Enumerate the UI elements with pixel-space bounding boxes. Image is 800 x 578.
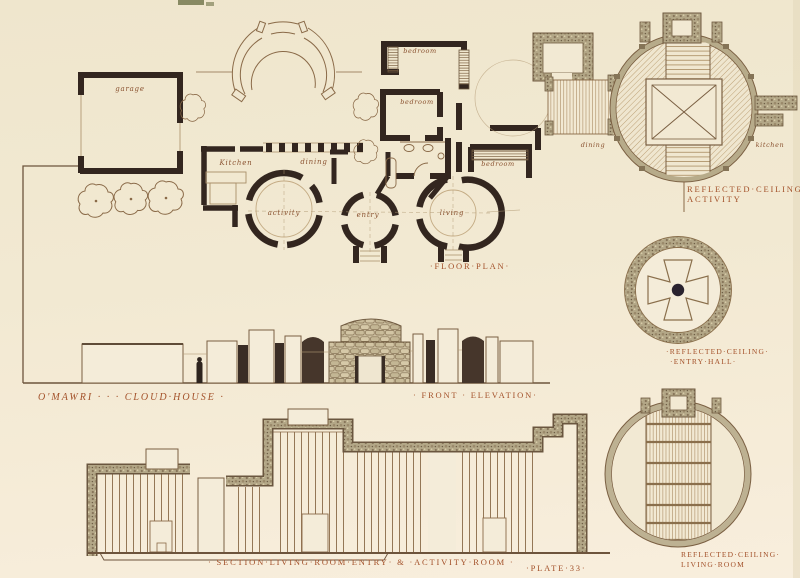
planter [180, 94, 205, 121]
caption-rc-entry-2: ·ENTRY·HALL· [670, 357, 736, 366]
dark-cylinder-right [462, 337, 484, 384]
rc-walkway [545, 75, 618, 135]
rc-kitchen-room [533, 33, 593, 82]
label-garage: garage [115, 85, 145, 93]
label-bedroom-1: bedroom [403, 47, 436, 55]
garden-arc [196, 21, 362, 101]
rc-activity-stub [755, 96, 797, 126]
trees [78, 181, 183, 217]
caption-front-elevation: · FRONT · ELEVATION· [413, 390, 538, 400]
planter [353, 93, 378, 120]
reflected-ceiling-living-room: REFLECTED·CEILING· LIVING·ROOM [605, 389, 780, 569]
rc-label-kitchen: kitchen [756, 141, 785, 149]
architectural-drawing: garage Kitchen dining bedroom bedroom be… [0, 0, 800, 578]
reflected-ceiling-entry-hall: ·REFLECTED·CEILING· ·ENTRY·HALL· [625, 237, 769, 367]
caption-rc-living-2: LIVING·ROOM [681, 560, 745, 569]
front-elevation: O'MAWRI · · · CLOUD·HOUSE · · FRONT · EL… [23, 319, 550, 403]
rc-living-planks [646, 404, 711, 548]
rc-label-dining: dining [581, 141, 605, 149]
caption-rc-living-1: REFLECTED·CEILING· [681, 550, 780, 559]
floor-plan: garage Kitchen dining bedroom bedroom be… [23, 21, 551, 383]
rc-activity-beam-square [646, 79, 722, 145]
project-title: O'MAWRI · · · CLOUD·HOUSE · [38, 392, 225, 403]
property-line [23, 166, 78, 383]
caption-rc-activity-1: REFLECTED·CEILING· [687, 184, 800, 194]
label-activity: activity [268, 209, 301, 217]
label-bedroom-2: bedroom [400, 98, 433, 106]
reflected-ceiling-activity: dining kitchen REFLECTED·CEILING· ACTIVI… [533, 13, 800, 212]
label-living: living [440, 209, 464, 217]
caption-rc-entry-1: ·REFLECTED·CEILING· [666, 347, 769, 356]
rc-entry-center-light [672, 284, 684, 296]
kitchen-counters [206, 172, 246, 204]
dark-cylinder-left [302, 337, 324, 383]
label-dining: dining [300, 158, 327, 166]
caption-section: · SECTION·LIVING·ROOM·ENTRY· & ·ACTIVITY… [208, 557, 515, 567]
label-kitchen: Kitchen [219, 159, 253, 167]
caption-rc-activity-2: ACTIVITY [687, 194, 742, 204]
stone-tower [329, 319, 410, 383]
caption-floor-plan: ·FLOOR·PLAN· [430, 261, 510, 271]
label-bedroom-3: bedroom [481, 160, 514, 168]
plate-number: ·PLATE·33· [526, 563, 587, 573]
drawing-sheet: garage Kitchen dining bedroom bedroom be… [0, 0, 800, 578]
section-drawing: · SECTION·LIVING·ROOM·ENTRY· & ·ACTIVITY… [88, 409, 610, 567]
label-entry: entry [357, 211, 380, 219]
figure-silhouette [197, 357, 203, 383]
